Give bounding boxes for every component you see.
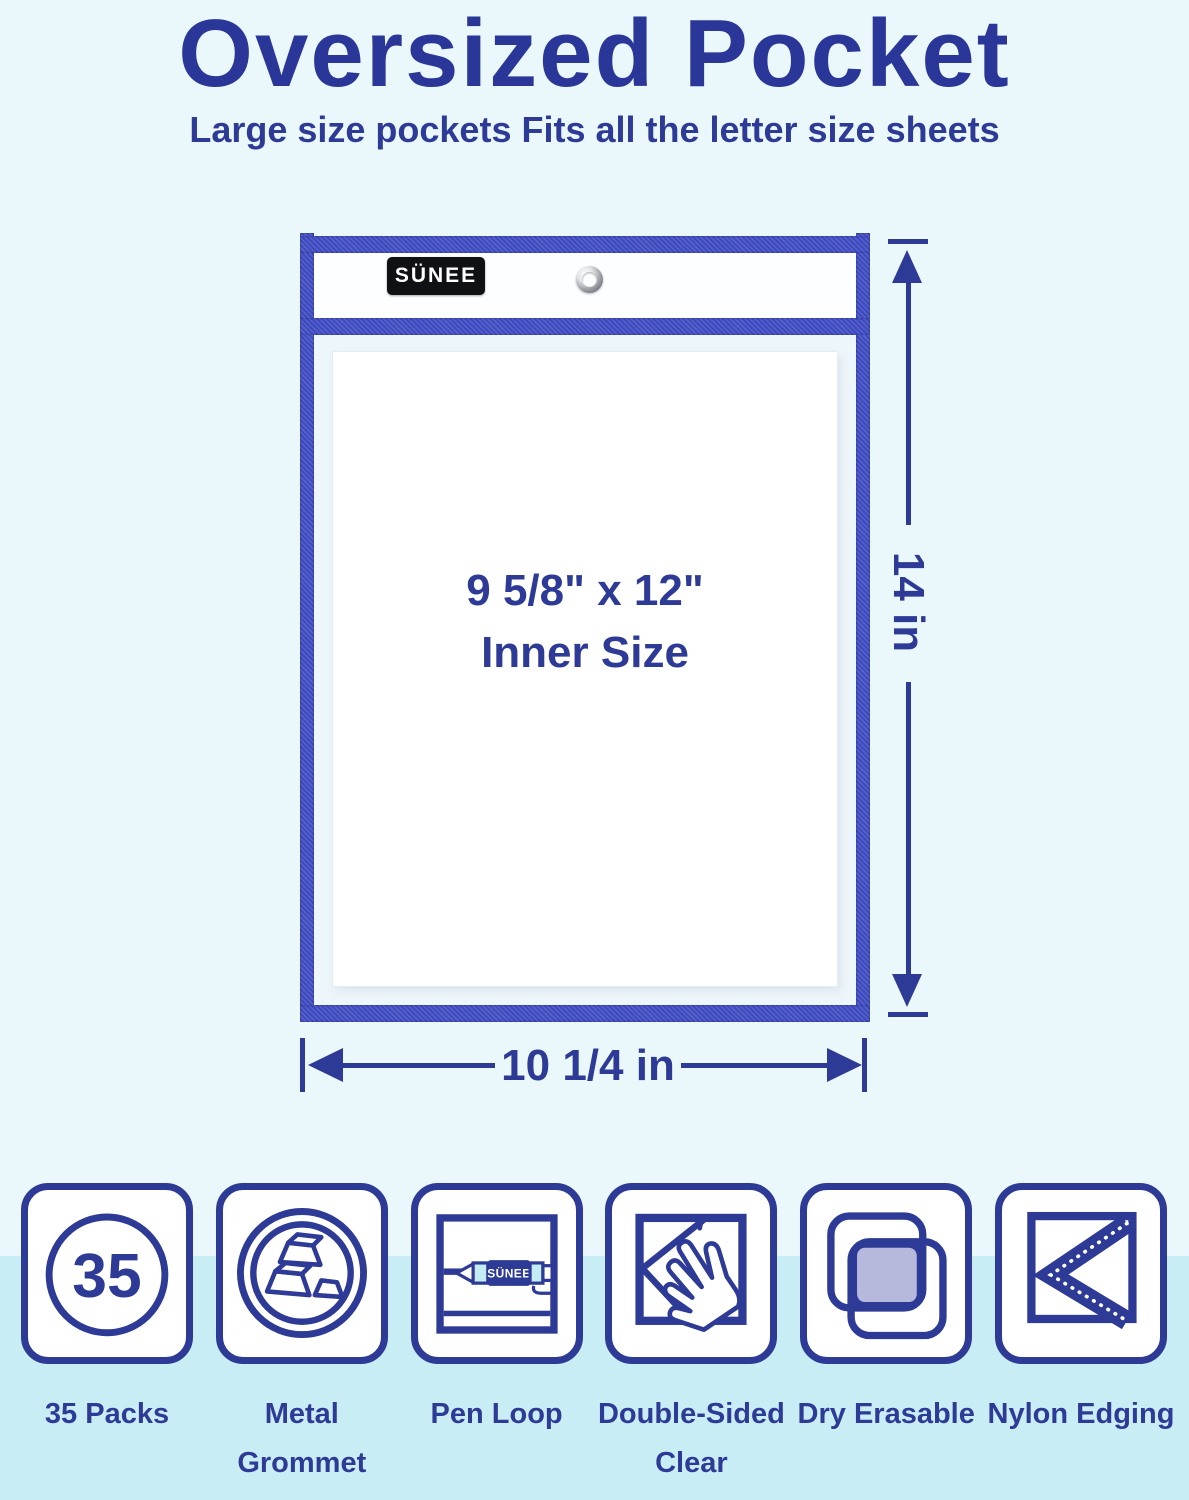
overlap-fill bbox=[854, 1245, 920, 1306]
pocket-bottom-line bbox=[443, 1311, 550, 1317]
inner-size-text: 9 5/8" x 12" Inner Size bbox=[333, 352, 837, 684]
feature-label: Double-Sided Clear bbox=[598, 1390, 785, 1488]
feature-card bbox=[800, 1183, 972, 1364]
pen-loop-icon: SÜNEE bbox=[418, 1190, 576, 1357]
feature-label: Metal Grommet bbox=[237, 1390, 366, 1488]
pocket-bottom-edging bbox=[300, 1005, 870, 1022]
pocket-top-edging bbox=[300, 236, 870, 253]
feature-dry-erasable: Dry Erasable bbox=[793, 1183, 979, 1364]
width-dim-right-line bbox=[681, 1063, 827, 1068]
feature-card bbox=[216, 1183, 388, 1364]
width-dim-right-arrow-icon bbox=[827, 1048, 862, 1082]
feature-card: 35 bbox=[21, 1183, 193, 1364]
page-subtitle: Large size pockets Fits all the letter s… bbox=[0, 102, 1189, 158]
overlapping-squares-icon bbox=[807, 1190, 965, 1357]
height-dim-top-cap bbox=[888, 239, 928, 244]
page-title: Oversized Pocket bbox=[0, 0, 1189, 108]
product-infographic: Oversized Pocket Large size pockets Fits… bbox=[0, 0, 1189, 1500]
pen-clip bbox=[533, 1286, 552, 1293]
pen-neck bbox=[473, 1263, 488, 1283]
feature-35-packs: 35 35 Packs bbox=[14, 1183, 200, 1364]
height-dim-label: 14 in bbox=[886, 517, 930, 687]
feature-label: Dry Erasable bbox=[798, 1390, 975, 1439]
height-dim-down-arrow-icon bbox=[892, 974, 922, 1007]
width-dim-left-line bbox=[343, 1063, 495, 1068]
inner-size-dimensions: 9 5/8" x 12" bbox=[333, 560, 837, 622]
pocket-divider-edging bbox=[300, 318, 870, 335]
pen-body bbox=[530, 1263, 543, 1283]
feature-card: SÜNEE bbox=[411, 1183, 583, 1364]
feature-label: 35 Packs bbox=[45, 1390, 169, 1439]
pack-count: 35 bbox=[72, 1241, 141, 1311]
feature-card bbox=[995, 1183, 1167, 1364]
metal-ingots bbox=[267, 1234, 342, 1296]
width-dim-left-arrow-icon bbox=[308, 1048, 343, 1082]
width-dim-left-cap bbox=[300, 1038, 305, 1092]
height-dim-upper-line bbox=[906, 283, 911, 525]
count-circle-icon: 35 bbox=[28, 1190, 186, 1357]
width-dim-right-cap bbox=[862, 1038, 867, 1092]
feature-nylon-edging: Nylon Edging bbox=[988, 1183, 1174, 1364]
width-dim-label: 10 1/4 in bbox=[488, 1041, 688, 1091]
inner-size-caption: Inner Size bbox=[333, 622, 837, 684]
pen-tip bbox=[456, 1264, 473, 1282]
height-dim-bottom-cap bbox=[888, 1012, 928, 1017]
inner-sheet: 9 5/8" x 12" Inner Size bbox=[333, 352, 837, 986]
feature-label: Nylon Edging bbox=[988, 1390, 1175, 1439]
marker-pen: SÜNEE bbox=[456, 1260, 552, 1293]
grommet bbox=[576, 266, 603, 293]
feature-label: Pen Loop bbox=[431, 1390, 563, 1439]
pen-brand-text: SÜNEE bbox=[487, 1266, 530, 1281]
pocket-left-edging bbox=[300, 233, 314, 1022]
feature-card bbox=[605, 1183, 777, 1364]
feature-metal-grommet: Metal Grommet bbox=[209, 1183, 395, 1364]
brand-label: SÜNEE bbox=[387, 257, 485, 295]
height-dim-lower-line bbox=[906, 682, 911, 974]
pocket-right-edging bbox=[856, 233, 870, 1022]
corner-edging-icon bbox=[1002, 1190, 1160, 1357]
metal-ingots-icon bbox=[223, 1190, 381, 1357]
features-row: 35 35 Packs Metal Gr bbox=[14, 1183, 1174, 1364]
feature-double-sided-clear: Double-Sided Clear bbox=[598, 1183, 784, 1364]
feature-pen-loop: SÜNEE Pen Loop bbox=[404, 1183, 590, 1364]
hand-on-sheet-icon bbox=[612, 1190, 770, 1357]
pen-cap bbox=[543, 1266, 552, 1281]
height-dim-up-arrow-icon bbox=[892, 250, 922, 283]
pocket-illustration: 9 5/8" x 12" Inner Size SÜNEE bbox=[300, 233, 870, 1022]
